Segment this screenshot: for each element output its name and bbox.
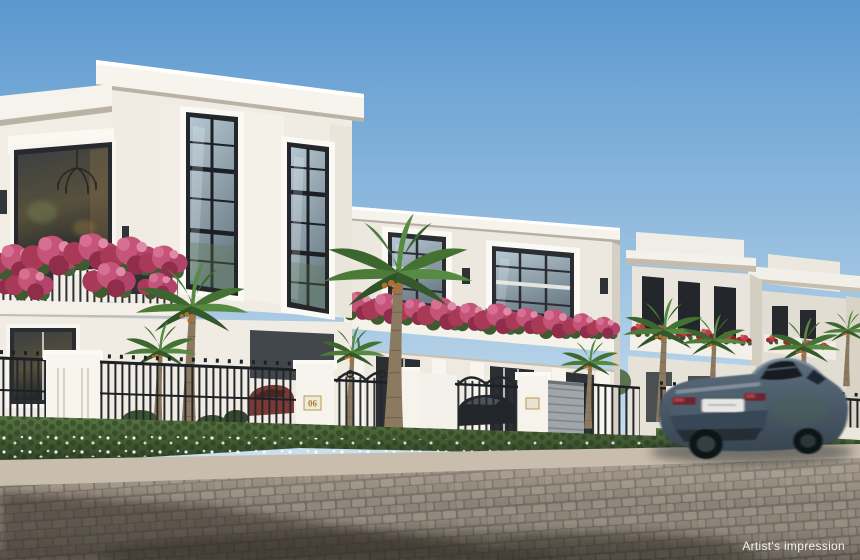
house-number-plaque <box>526 398 539 409</box>
window <box>678 281 700 336</box>
house-number: 06 <box>308 399 318 409</box>
ornate-gate <box>455 377 518 438</box>
wall-lantern-icon <box>600 278 608 294</box>
driveway-gate-grey <box>548 380 584 440</box>
villa-street-rendering: 06 <box>0 0 860 560</box>
caption-text: Artist's impression <box>742 539 845 553</box>
window-tall <box>281 136 335 320</box>
boundary-wall <box>418 372 457 438</box>
wall-sconce-icon <box>0 190 7 214</box>
wall-lantern-icon <box>462 268 470 284</box>
gate-pillar <box>515 372 551 440</box>
rendering-stage: 06 <box>0 0 860 560</box>
